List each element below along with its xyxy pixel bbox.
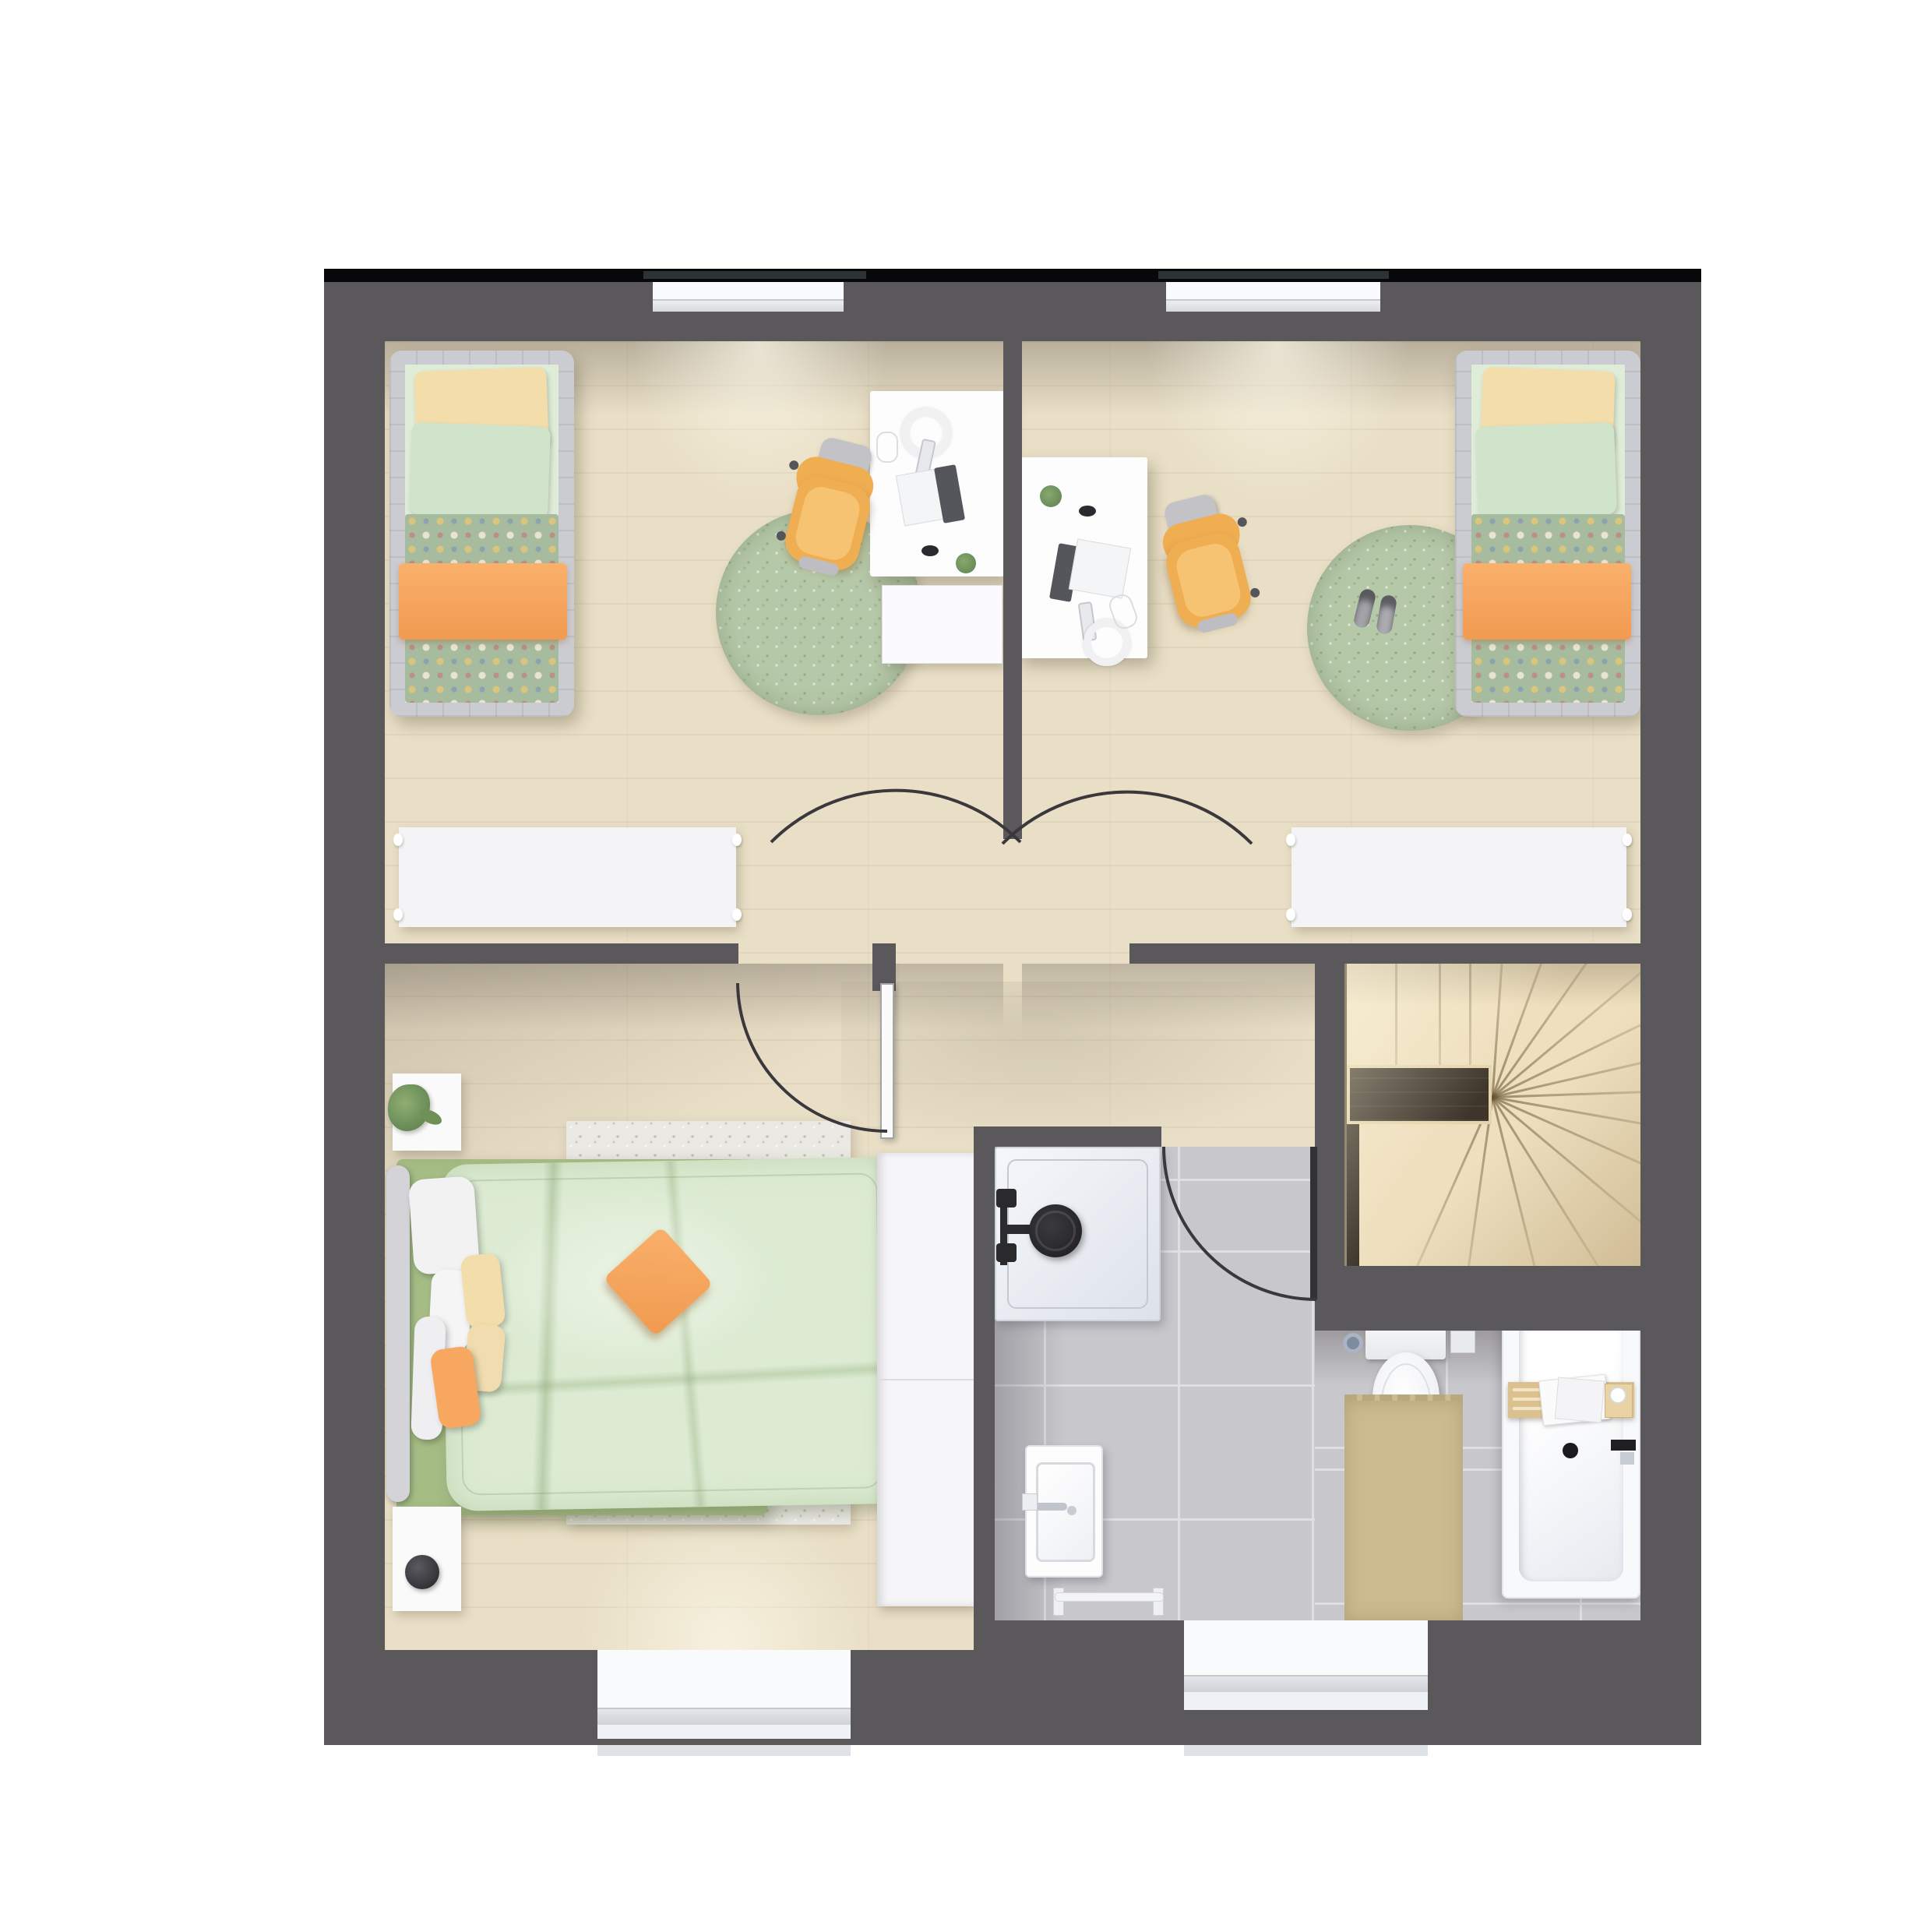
page: { "image_type": "architectural floor pla…	[0, 0, 1931, 1932]
kids-left-door-arc	[771, 791, 1020, 842]
door-swing-arcs	[0, 0, 1931, 1932]
master-door-arc	[738, 983, 887, 1131]
floor-plan	[0, 0, 1931, 1932]
kids-right-door-arc	[1002, 792, 1252, 844]
bathroom-door-arc	[1164, 1147, 1316, 1299]
